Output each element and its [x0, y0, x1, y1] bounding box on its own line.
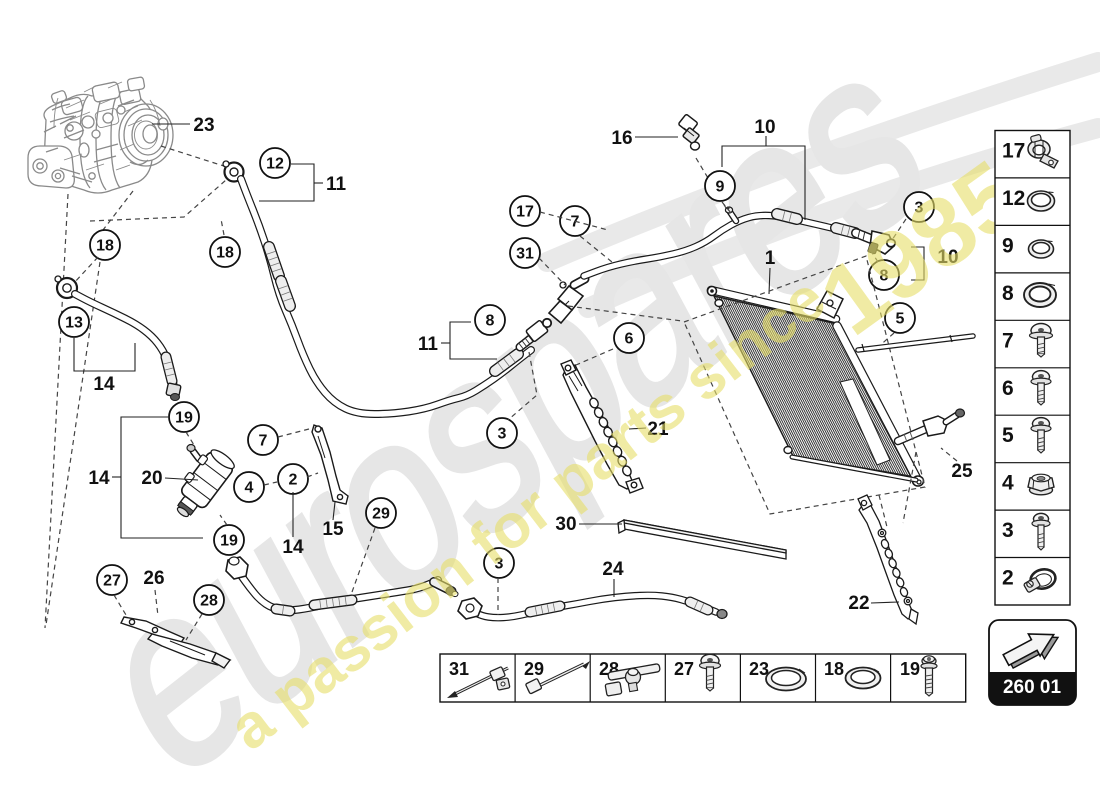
svg-text:5: 5 — [1002, 424, 1014, 447]
svg-text:1: 1 — [765, 248, 776, 269]
svg-text:6: 6 — [625, 331, 634, 348]
svg-text:31: 31 — [449, 659, 469, 679]
svg-text:14: 14 — [93, 374, 115, 395]
svg-text:27: 27 — [674, 659, 694, 679]
svg-text:11: 11 — [326, 174, 347, 195]
svg-text:24: 24 — [602, 559, 624, 580]
svg-text:14: 14 — [88, 468, 110, 489]
svg-text:17: 17 — [1002, 140, 1025, 163]
svg-text:20: 20 — [141, 468, 162, 489]
svg-text:16: 16 — [611, 128, 632, 149]
svg-text:26: 26 — [143, 568, 164, 589]
svg-text:28: 28 — [200, 593, 218, 610]
svg-text:18: 18 — [824, 659, 844, 679]
svg-text:12: 12 — [1002, 187, 1025, 210]
svg-text:14: 14 — [282, 537, 304, 558]
svg-text:8: 8 — [486, 313, 495, 330]
svg-text:6: 6 — [1002, 377, 1014, 400]
svg-text:25: 25 — [951, 461, 973, 482]
svg-text:17: 17 — [516, 204, 534, 221]
svg-text:15: 15 — [322, 519, 344, 540]
svg-text:3: 3 — [498, 426, 507, 443]
svg-text:22: 22 — [848, 593, 869, 614]
svg-text:27: 27 — [103, 573, 121, 590]
svg-text:4: 4 — [245, 480, 254, 497]
svg-text:10: 10 — [754, 117, 775, 138]
svg-text:11: 11 — [418, 334, 439, 355]
svg-text:260 01: 260 01 — [1003, 677, 1062, 698]
svg-text:3: 3 — [1002, 519, 1014, 542]
svg-text:19: 19 — [900, 659, 920, 679]
svg-text:19: 19 — [175, 410, 193, 427]
svg-text:29: 29 — [372, 506, 390, 523]
svg-text:9: 9 — [716, 179, 725, 196]
svg-text:12: 12 — [266, 156, 284, 173]
svg-text:19: 19 — [220, 533, 238, 550]
svg-text:4: 4 — [1002, 472, 1014, 495]
svg-text:2: 2 — [1002, 567, 1014, 590]
svg-text:31: 31 — [516, 246, 534, 263]
svg-text:8: 8 — [1002, 282, 1014, 305]
svg-text:9: 9 — [1002, 234, 1014, 257]
svg-text:23: 23 — [193, 115, 214, 136]
svg-text:13: 13 — [65, 315, 83, 332]
svg-text:2: 2 — [289, 472, 298, 489]
svg-text:18: 18 — [96, 238, 114, 255]
svg-text:18: 18 — [216, 245, 234, 262]
svg-text:7: 7 — [259, 433, 268, 450]
svg-text:7: 7 — [1002, 329, 1014, 352]
svg-text:29: 29 — [524, 659, 544, 679]
